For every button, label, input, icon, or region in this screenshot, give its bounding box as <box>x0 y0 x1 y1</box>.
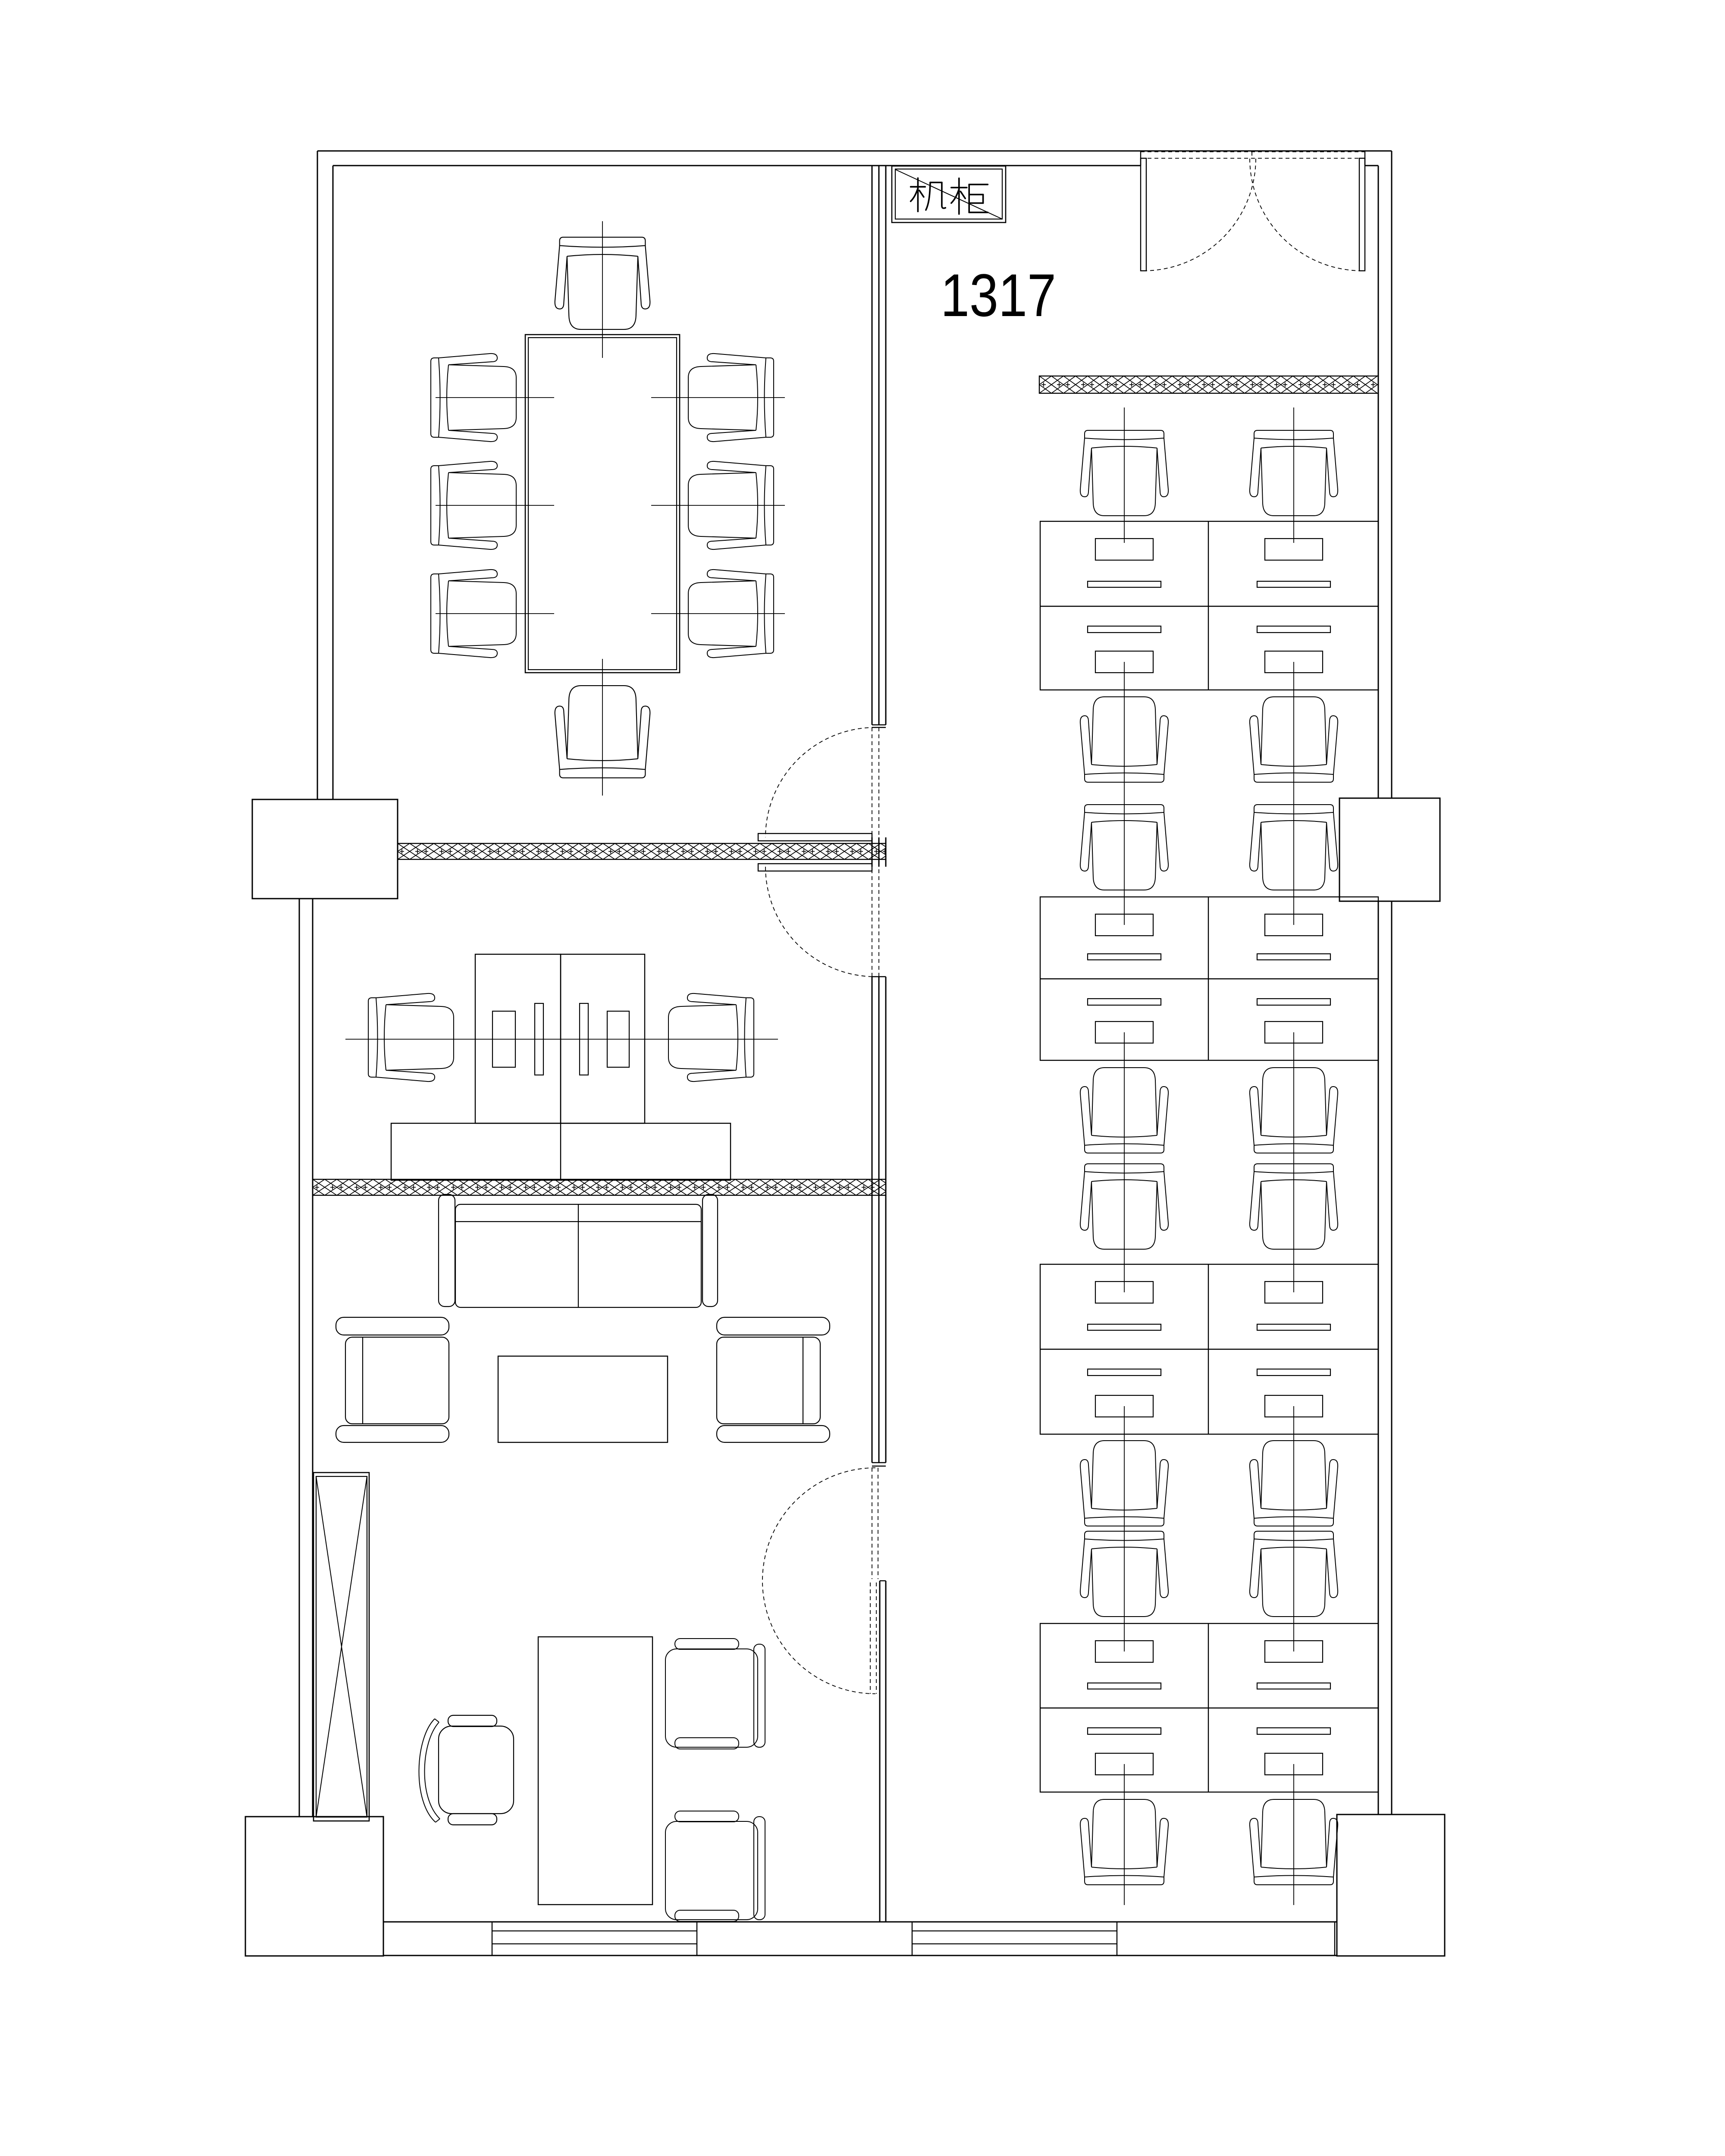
svg-text:1317: 1317 <box>941 261 1056 329</box>
